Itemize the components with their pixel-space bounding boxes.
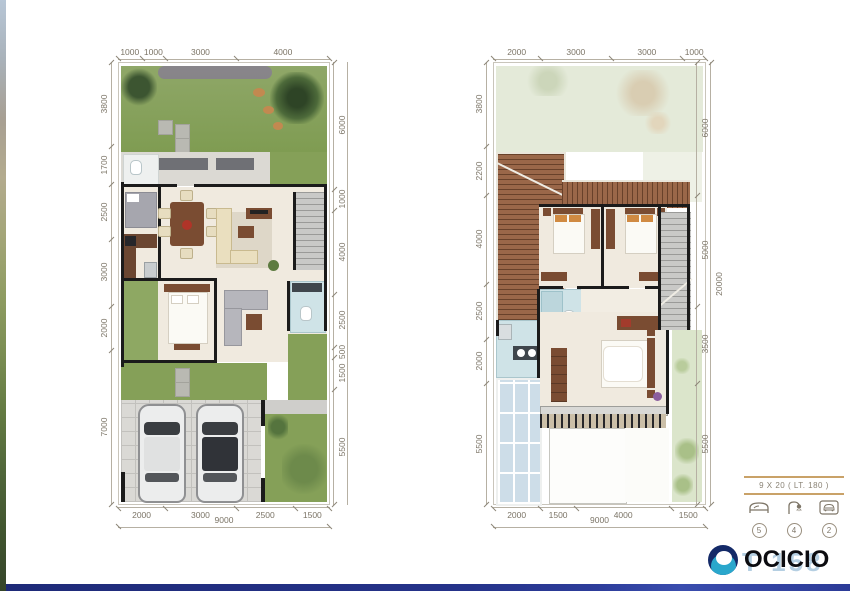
dim-label: 4000 (337, 242, 347, 261)
rear-window (203, 473, 237, 482)
dim-label: 1000 (144, 47, 163, 57)
dim-label: 20000 (714, 272, 724, 296)
dim-label: 4000 (474, 230, 484, 249)
dim-label: 4000 (273, 47, 292, 57)
dim-segment: 2000 (493, 44, 540, 60)
dim-segment: 9000 (493, 516, 706, 528)
stepping-stone (175, 368, 190, 383)
dim-label: 7000 (99, 418, 109, 437)
side-garden (288, 334, 327, 400)
dims-left-left-plan: 380017002500300020007000 (96, 62, 112, 505)
bathroom-count: 4 (787, 523, 802, 538)
side-garden (270, 152, 327, 186)
vanity-counter (292, 283, 322, 292)
car (196, 404, 244, 503)
dim-label: 3000 (566, 47, 585, 57)
open-area (625, 428, 669, 502)
terrace-bench (216, 158, 254, 170)
rock (273, 122, 283, 130)
wall (601, 207, 604, 288)
dim-segment: 4000 (236, 44, 330, 60)
logo-mark-icon (708, 545, 738, 575)
duvet (603, 346, 643, 382)
pillow (641, 215, 653, 222)
pillow (569, 215, 581, 222)
palm-tree (270, 72, 324, 124)
bush (268, 414, 288, 440)
dining-chair (158, 208, 171, 219)
windshield (144, 422, 180, 435)
dim-label: 3800 (474, 95, 484, 114)
dim-label: 2000 (474, 352, 484, 371)
ground-floor-plan (118, 62, 330, 505)
bedrooms-feature: 5 (744, 500, 774, 538)
wall (293, 192, 296, 270)
wall (496, 320, 499, 336)
dim-segment: 1000 (682, 44, 706, 60)
dining-chair (180, 190, 193, 201)
dim-segment: 20000 (710, 62, 726, 505)
pillow (555, 215, 567, 222)
chaise (224, 308, 242, 346)
tv (250, 210, 268, 214)
dining-chair (158, 226, 171, 237)
dim-label: 2000 (99, 318, 109, 337)
pillow (627, 215, 639, 222)
nightstand (647, 328, 655, 336)
wardrobe (551, 348, 567, 402)
terrace-bench (154, 158, 208, 170)
dim-segment: 3000 (96, 239, 112, 305)
closet (591, 209, 600, 249)
shower (541, 291, 563, 313)
dims-left-right-plan: 380022004000250020005500 (471, 62, 487, 505)
kitchen-counter (123, 248, 136, 278)
sink (528, 349, 536, 357)
dim-label: 3000 (637, 47, 656, 57)
dim-segment: 1000 (118, 44, 142, 60)
dim-segment: 1700 (96, 146, 112, 184)
pillow (171, 295, 183, 304)
shrub-row (158, 66, 272, 79)
sink (517, 349, 525, 357)
side-path (265, 400, 327, 414)
pillow (187, 295, 199, 304)
balcony-void (549, 428, 627, 504)
bush (674, 358, 690, 374)
dims-top-left-plan: 1000100030004000 (118, 44, 330, 60)
fridge (144, 262, 157, 278)
bush (282, 444, 326, 494)
dim-label: 2500 (474, 302, 484, 321)
lot-size-label: 9 X 20 ( LT. 180 ) (744, 481, 844, 490)
bush (673, 474, 693, 496)
dim-label: 1000 (337, 190, 347, 209)
toilet (300, 306, 312, 321)
closet (606, 209, 615, 249)
dim-segment: 2000 (471, 339, 487, 383)
dim-segment: 3000 (165, 44, 236, 60)
dim-label: 3000 (191, 47, 210, 57)
dim-segment: 4000 (471, 195, 487, 284)
dims-total-right-plan: 9000 (493, 516, 706, 528)
plant (653, 392, 662, 401)
stepping-stone (175, 124, 190, 139)
car (138, 404, 186, 503)
bed-bench (174, 344, 200, 350)
sofa (230, 250, 258, 264)
dresser (541, 272, 567, 281)
overall-dim-line (347, 62, 348, 505)
shower-icon (786, 502, 802, 519)
tree (121, 68, 157, 106)
windshield (202, 422, 238, 435)
floorplan-sheet: 1000100030004000 38001700250030002000700… (0, 0, 850, 591)
logo-text: OCICIO (744, 546, 829, 574)
dim-label: 3000 (99, 263, 109, 282)
dim-label: 6000 (337, 116, 347, 135)
side-table (246, 314, 262, 330)
garage-feature: 2 (814, 500, 844, 538)
bed-icon (748, 502, 770, 519)
dining-chair (180, 248, 193, 259)
feature-counts: 5 4 2 (744, 500, 844, 538)
branding: T 158 OCICIO (708, 541, 850, 583)
dim-label: 9000 (215, 515, 234, 525)
coffee-table (238, 226, 254, 238)
washer (498, 324, 512, 340)
bathrooms-feature: 4 (779, 500, 809, 538)
dim-label: 1000 (685, 47, 704, 57)
upper-floor-plan (493, 62, 706, 505)
stepping-stone (158, 120, 173, 135)
dim-label: 1700 (99, 156, 109, 175)
dims-top-right-plan: 2000300030001000 (493, 44, 706, 60)
dim-label: 2500 (337, 311, 347, 330)
nightstand (543, 208, 551, 216)
faded-rock (643, 112, 673, 134)
car-roof (202, 437, 238, 471)
wall (666, 330, 669, 414)
stepping-stone (175, 382, 190, 397)
wall (121, 182, 124, 367)
dim-label: 5500 (700, 435, 710, 454)
dim-segment: 2000 (96, 306, 112, 350)
dim-segment: 2500 (96, 184, 112, 239)
rock (253, 88, 265, 97)
dim-segment: 2500 (471, 284, 487, 339)
plant (268, 260, 279, 271)
dim-label: 9000 (590, 515, 609, 525)
left-edge-photo-strip (0, 0, 6, 591)
decor (621, 319, 631, 327)
dim-label: 2000 (507, 47, 526, 57)
headboard (647, 338, 655, 388)
headboard (164, 284, 210, 292)
rock (263, 106, 274, 114)
wall (324, 186, 327, 331)
skylight-glass-roof (496, 378, 542, 506)
front-garden (121, 363, 267, 400)
logo-white-core (716, 551, 732, 565)
spec-block: 9 X 20 ( LT. 180 ) 5 4 2 (744, 476, 844, 538)
stepping-stone (175, 138, 190, 153)
accent-rule (744, 493, 844, 495)
dim-segment: 3800 (96, 62, 112, 146)
wall (214, 278, 217, 362)
dims-total-left-plan: 9000 (118, 516, 330, 528)
dim-label: 2200 (474, 161, 484, 180)
side-yard (121, 281, 158, 362)
toilet (130, 160, 142, 175)
dim-label: 3500 (700, 335, 710, 354)
pillow (127, 194, 139, 202)
dim-segment: 7000 (96, 350, 112, 505)
wall (687, 204, 690, 330)
dims-total-height-right-plan: 20000 (710, 62, 726, 505)
rear-window (145, 473, 179, 482)
stove (125, 236, 136, 246)
dim-label: 2500 (99, 202, 109, 221)
bottom-blue-bar (6, 584, 850, 591)
staircase (296, 192, 324, 270)
dim-label: 1000 (120, 47, 139, 57)
pergola (540, 414, 666, 428)
chaise (224, 290, 268, 310)
dim-segment: 3000 (540, 44, 611, 60)
dim-label: 5000 (700, 241, 710, 260)
garage-count: 2 (822, 523, 837, 538)
bedroom-count: 5 (752, 523, 767, 538)
faded-shrub (523, 66, 573, 96)
wall (121, 472, 125, 502)
car-roof (144, 437, 180, 471)
logo: OCICIO (708, 545, 829, 575)
dim-segment: 2200 (471, 146, 487, 195)
dim-label: 5500 (337, 438, 347, 457)
dim-segment: 5500 (471, 383, 487, 505)
faded-tree (613, 70, 673, 116)
dim-segment: 9000 (118, 516, 330, 528)
dim-segment: 3000 (611, 44, 682, 60)
dim-label: 3800 (99, 95, 109, 114)
dim-label: 1500 (337, 364, 347, 383)
centerpiece (182, 220, 192, 230)
dim-segment: 3800 (471, 62, 487, 146)
dim-segment: 1000 (142, 44, 166, 60)
dim-label: 5500 (474, 435, 484, 454)
accent-rule (744, 476, 844, 478)
car-icon (819, 502, 839, 519)
wall (658, 207, 661, 330)
wall (287, 281, 290, 331)
dim-label: 6000 (700, 119, 710, 138)
